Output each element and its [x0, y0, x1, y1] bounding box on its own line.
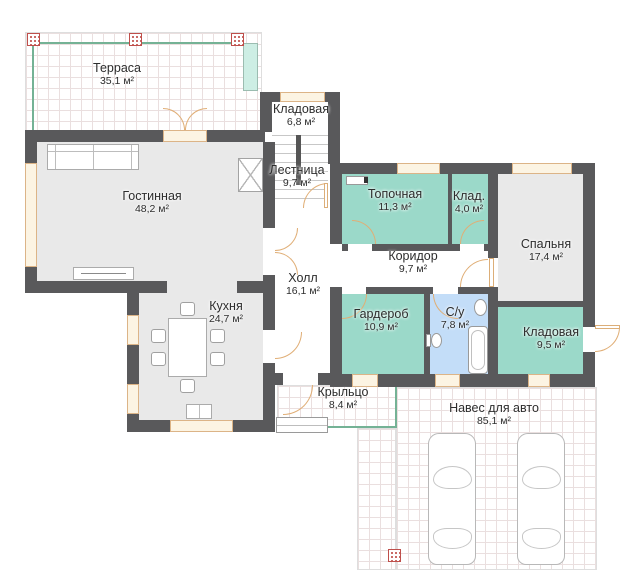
car-windshield [522, 466, 561, 489]
wall-segment [330, 174, 342, 244]
room-name: Терраса [93, 62, 141, 75]
chair [151, 352, 166, 366]
wall-segment [328, 102, 340, 164]
room-name: Кладовая [273, 103, 329, 116]
room-area: 85,1 м² [449, 415, 539, 428]
wall-segment [448, 174, 452, 244]
wall-segment [488, 163, 498, 258]
door-leaf [595, 325, 620, 329]
room-name: Крыльцо [318, 386, 369, 399]
column-marker [27, 33, 40, 46]
wall-segment [25, 281, 167, 293]
tv-line [81, 273, 126, 274]
bathroom-sink [474, 299, 487, 316]
sofa-divider [93, 145, 94, 169]
room-area: 9,7 м² [269, 177, 324, 190]
terrace-planter [243, 43, 258, 91]
window [528, 374, 550, 387]
sofa-divider [55, 145, 56, 169]
wall-segment [366, 287, 433, 294]
wall-segment [440, 163, 512, 174]
fireplace [238, 158, 263, 192]
chair [210, 329, 225, 343]
room-area: 7,8 м² [441, 319, 469, 332]
room-label-kitchen: Кухня 24,7 м² [209, 300, 243, 326]
chair [210, 352, 225, 366]
door-leaf [324, 183, 328, 208]
wall-segment [460, 374, 528, 387]
window [435, 374, 460, 387]
room-name: Гостинная [122, 190, 181, 203]
room-label-storage-top: Кладовая 6,8 м² [273, 103, 329, 129]
room-area: 11,3 м² [368, 201, 422, 214]
room-label-hall: Холл 16,1 м² [286, 272, 320, 298]
room-name: Холл [286, 272, 320, 285]
wall-segment [260, 92, 280, 102]
room-label-terrace: Терраса 35,1 м² [93, 62, 141, 88]
car-rear-window [433, 528, 472, 549]
terrace-door-sill [163, 130, 207, 142]
toilet-bowl [431, 333, 442, 348]
floor-plan: Терраса 35,1 м² Гостинная 48,2 м² Кладов… [0, 0, 640, 574]
room-label-porch: Крыльцо 8,4 м² [318, 386, 369, 412]
door-arc [595, 327, 620, 352]
window [127, 315, 139, 345]
car [428, 433, 476, 565]
room-label-storage-right: Кладовая 9,5 м² [523, 326, 579, 352]
room-name: Спальня [521, 238, 571, 251]
wall-segment [378, 374, 435, 387]
room-name: Кухня [209, 300, 243, 313]
wall-segment [127, 293, 139, 315]
window [280, 92, 325, 102]
window [170, 420, 233, 432]
room-name: Кладовая [523, 326, 579, 339]
room-label-closet: Клад. 4,0 м² [453, 190, 485, 216]
chair [151, 329, 166, 343]
room-label-bathroom: С/у 7,8 м² [441, 306, 469, 332]
room-area: 48,2 м² [122, 203, 181, 216]
room-label-stairs: Лестница 9,7 м² [269, 164, 324, 190]
wall-segment [127, 345, 139, 384]
room-name: Лестница [269, 164, 324, 177]
wall-segment [342, 244, 348, 251]
room-name: Топочная [368, 188, 422, 201]
wall-segment [260, 102, 272, 132]
room-area: 17,4 м² [521, 251, 571, 264]
column-marker [231, 33, 244, 46]
room-area: 24,7 м² [209, 313, 243, 326]
wall-segment [583, 174, 595, 327]
wall-segment [458, 287, 488, 294]
room-name: Клад. [453, 190, 485, 203]
room-label-boiler-room: Топочная 11,3 м² [368, 188, 422, 214]
room-name: Гардероб [354, 308, 409, 321]
boiler-mark [364, 177, 368, 183]
wall-segment [275, 373, 283, 385]
room-label-corridor: Коридор 9,7 м² [388, 250, 437, 276]
sofa-divider [131, 145, 132, 169]
wall-segment [488, 287, 498, 374]
column-marker [388, 549, 401, 562]
window [25, 163, 37, 267]
car-rear-window [522, 528, 561, 549]
window [397, 163, 440, 174]
room-area: 9,7 м² [388, 263, 437, 276]
wall-segment [207, 130, 265, 142]
wall-segment [330, 287, 342, 374]
room-label-bedroom: Спальня 17,4 м² [521, 238, 571, 264]
wall-segment [25, 142, 37, 163]
window [127, 384, 139, 414]
room-name: Навес для авто [449, 402, 539, 415]
room-label-carport: Навес для авто 85,1 м² [449, 402, 539, 428]
bathtub-inner [471, 330, 485, 370]
chair [180, 379, 195, 393]
porch-step-divider [277, 425, 327, 426]
room-label-living-room: Гостинная 48,2 м² [122, 190, 181, 216]
car [517, 433, 565, 565]
wall-segment [263, 281, 275, 330]
room-area: 35,1 м² [93, 75, 141, 88]
kitchen-sink-divider [199, 405, 200, 418]
room-name: С/у [441, 306, 469, 319]
room-area: 10,9 м² [354, 321, 409, 334]
wall-segment [550, 374, 595, 387]
wall-segment [25, 130, 163, 142]
wall-segment [572, 163, 595, 174]
wall-segment [330, 163, 397, 174]
car-windshield [433, 466, 472, 489]
dining-table [168, 318, 207, 377]
wall-segment [583, 352, 595, 374]
room-label-wardrobe: Гардероб 10,9 м² [354, 308, 409, 334]
wall-segment [263, 363, 275, 432]
column-marker [129, 33, 142, 46]
room-area: 6,8 м² [273, 116, 329, 129]
wall-segment [127, 420, 170, 432]
door-leaf [489, 258, 494, 287]
wall-segment [498, 301, 583, 307]
wall-segment [325, 92, 340, 102]
room-area: 8,4 м² [318, 399, 369, 412]
kitchen-passage [167, 281, 237, 293]
room-area: 4,0 м² [453, 203, 485, 216]
window [512, 163, 572, 174]
chair [180, 302, 195, 316]
room-name: Коридор [388, 250, 437, 263]
room-area: 16,1 м² [286, 285, 320, 298]
room-area: 9,5 м² [523, 339, 579, 352]
